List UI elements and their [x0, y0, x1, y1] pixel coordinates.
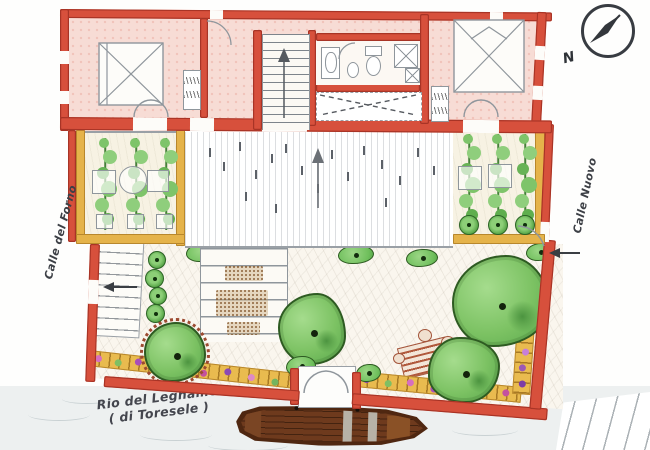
garden-sill — [85, 131, 176, 133]
calle-entry-arrow-icon — [548, 246, 582, 260]
boat-bow-seat — [386, 415, 410, 440]
bathroom-door-arc — [338, 42, 356, 60]
window-gap — [60, 51, 69, 64]
shrub — [148, 251, 166, 269]
sink-oval — [347, 62, 359, 78]
planter-square — [458, 166, 482, 190]
water-ripple — [452, 424, 518, 436]
bathroom-wall-north — [316, 33, 428, 41]
walkway-exit-arrow-icon — [101, 280, 139, 294]
planter-square — [488, 164, 512, 188]
window-gap — [60, 91, 69, 104]
wall-opening — [88, 280, 99, 304]
window-gap — [210, 10, 223, 19]
bedroom-west-french-doors — [133, 98, 169, 118]
shrub — [149, 287, 167, 305]
compass-north-label: N — [561, 49, 577, 67]
gravel-patch — [216, 290, 268, 316]
window-gap — [532, 86, 543, 101]
water-gate-door-arcs — [302, 368, 350, 394]
shaft — [405, 68, 420, 83]
bed-west — [98, 42, 164, 106]
door-gap — [133, 118, 167, 131]
toilet-tank — [365, 46, 382, 56]
venetian-site-plan: Rio del Legname ( di Toresele ) — [0, 0, 650, 450]
gravel-patch — [227, 322, 260, 335]
planter-small — [96, 214, 113, 229]
calle-entry-door-arc — [514, 224, 546, 248]
stair-up-arrow-icon — [273, 44, 295, 120]
partition-stair-west — [253, 30, 262, 130]
boat-thwart — [368, 411, 378, 443]
shrub — [488, 215, 508, 235]
bed-east — [453, 19, 525, 93]
planter-small — [127, 214, 144, 229]
hall-door-arc — [206, 20, 232, 46]
round-bush — [144, 322, 206, 382]
stepping-stone — [418, 329, 432, 342]
planter-small — [156, 214, 173, 229]
planter-round — [119, 166, 147, 194]
planter-square — [147, 170, 169, 192]
boat-hull-planks — [241, 408, 424, 445]
shrub — [145, 269, 164, 288]
courtyard-tree — [428, 337, 500, 403]
compass — [581, 4, 635, 58]
door-gap — [190, 118, 214, 131]
closet-shelf — [431, 86, 449, 122]
bathtub-basin — [325, 52, 337, 73]
shower — [394, 44, 418, 68]
window-gap — [534, 46, 545, 61]
stepping-stone — [393, 353, 405, 364]
closet-shelf — [183, 70, 201, 110]
canopy-up-arrow-icon — [305, 146, 331, 210]
planter-square — [92, 170, 116, 194]
water-ripple — [140, 428, 212, 441]
courtyard-tree — [278, 293, 346, 365]
climbing-vine — [516, 132, 534, 224]
compass-needle-icon — [584, 7, 632, 55]
wall-west — [60, 9, 69, 131]
garden-border — [76, 234, 185, 244]
door-gap — [463, 120, 499, 133]
skylight-x-marks — [318, 93, 418, 117]
water-ripple — [28, 408, 90, 421]
boat-stern-deck — [244, 410, 261, 437]
shrub — [459, 215, 479, 235]
toilet-bowl — [366, 56, 381, 76]
boat-thwart — [342, 410, 352, 442]
garden-border — [176, 130, 185, 246]
gravel-patch — [225, 266, 263, 281]
street-label-east: Calle Nuovo — [569, 150, 600, 241]
shrub — [146, 304, 165, 323]
bedroom-east-french-doors — [463, 98, 499, 118]
